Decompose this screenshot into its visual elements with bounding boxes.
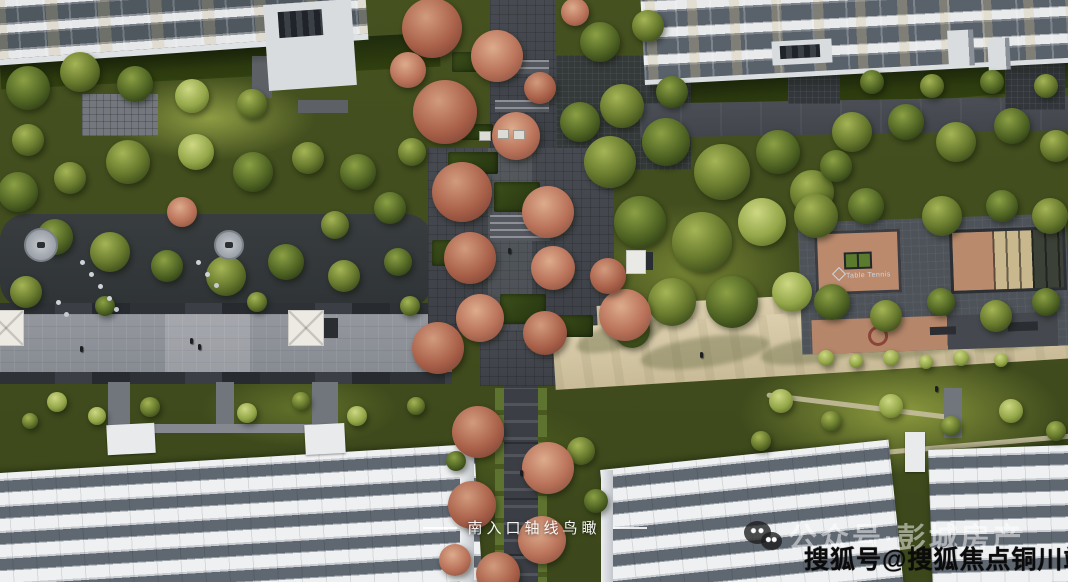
stepping-stones [80, 260, 85, 265]
tree-red [390, 52, 426, 88]
tree-green [832, 112, 872, 152]
tree-green [328, 260, 360, 292]
vegetation-layer [0, 0, 1068, 582]
tree-green [10, 276, 42, 308]
tree-green [90, 232, 130, 272]
garden-platform [214, 230, 244, 260]
tree-green [1034, 74, 1058, 98]
tree-red [522, 186, 574, 238]
tree-green [656, 76, 688, 108]
tree-green [614, 196, 666, 248]
tree-red [531, 246, 575, 290]
pedestrian [935, 386, 938, 392]
tree-red [522, 442, 574, 494]
tree-red [439, 544, 471, 576]
pedestrian [520, 470, 523, 476]
tree-green [247, 292, 267, 312]
pedestrian [80, 346, 83, 352]
tree-green [920, 74, 944, 98]
tree-green [237, 89, 267, 119]
tree-green [1032, 288, 1060, 316]
tree-green [883, 350, 899, 366]
tree-red [523, 311, 567, 355]
tree-green [849, 354, 863, 368]
tree-green [292, 142, 324, 174]
tree-green [446, 451, 466, 471]
tree-green [927, 288, 955, 316]
tree-red [476, 552, 520, 582]
canopy-umbrella [288, 310, 324, 346]
tree-green [178, 134, 214, 170]
tree-red [413, 80, 477, 144]
tree-green [584, 136, 636, 188]
pedestrian [198, 344, 201, 350]
tree-green [642, 118, 690, 166]
tree-green [407, 397, 425, 415]
tree-green [672, 212, 732, 272]
tree-green [206, 256, 246, 296]
tree-green [600, 84, 644, 128]
tree-green [820, 150, 852, 182]
tree-green [994, 353, 1008, 367]
tree-green [821, 411, 841, 431]
tree-green [941, 416, 961, 436]
wechat-icon [744, 521, 786, 555]
tree-green [374, 192, 406, 224]
tree-green [54, 162, 86, 194]
tree-green [794, 194, 838, 238]
tree-green [888, 104, 924, 140]
tree-red [599, 289, 651, 341]
tree-green [738, 198, 786, 246]
tree-red [524, 72, 556, 104]
tree-green [922, 196, 962, 236]
tree-green [879, 394, 903, 418]
tree-red [444, 232, 496, 284]
tree-red [167, 197, 197, 227]
tree-green [1046, 421, 1066, 441]
tree-green [0, 172, 38, 212]
kiosk-table [513, 130, 525, 140]
tree-green [772, 272, 812, 312]
tree-green [88, 407, 106, 425]
tree-green [980, 300, 1012, 332]
tree-green [818, 350, 834, 366]
tree-green [175, 79, 209, 113]
tree-green [584, 489, 608, 513]
tree-red [471, 30, 523, 82]
tree-green [321, 211, 349, 239]
canopy-table [626, 250, 646, 274]
tree-green [1040, 130, 1068, 162]
tree-green [12, 124, 44, 156]
tree-green [47, 392, 67, 412]
pedestrian [508, 248, 511, 254]
outdoor-seating [646, 252, 653, 270]
tree-green [60, 52, 100, 92]
tree-green [151, 250, 183, 282]
outdoor-seating [324, 318, 338, 338]
tree-green [106, 140, 150, 184]
tree-green [936, 122, 976, 162]
kiosk-table [479, 131, 491, 141]
sohu-watermark: 搜狐号@搜狐焦点铜川站 [804, 540, 1068, 576]
tree-green [384, 248, 412, 276]
tree-red [561, 0, 589, 26]
tree-green [560, 102, 600, 142]
tree-red [432, 162, 492, 222]
tree-red [412, 322, 464, 374]
tree-green [756, 130, 800, 174]
tree-green [400, 296, 420, 316]
tree-red [456, 294, 504, 342]
tree-green [292, 392, 310, 410]
pedestrian [190, 338, 193, 344]
tree-green [814, 284, 850, 320]
wechat-bubble-small [761, 532, 782, 550]
tree-green [999, 399, 1023, 423]
tree-green [268, 244, 304, 280]
tree-green [233, 152, 273, 192]
tree-red [590, 258, 626, 294]
tree-green [769, 389, 793, 413]
pedestrian [700, 352, 703, 358]
tree-green [347, 406, 367, 426]
tree-green [95, 296, 115, 316]
tree-green [751, 431, 771, 451]
tree-green [994, 108, 1030, 144]
tree-green [919, 355, 933, 369]
tree-green [648, 278, 696, 326]
tree-green [986, 190, 1018, 222]
tree-green [953, 350, 969, 366]
tree-green [398, 138, 426, 166]
tree-green [1032, 198, 1068, 234]
aerial-rendering: Table Tennis 南入口轴线鸟瞰 公众号·彭城房 [0, 0, 1068, 582]
garden-platform [24, 228, 58, 262]
tree-green [848, 188, 884, 224]
canopy-umbrella [0, 310, 24, 346]
tree-green [340, 154, 376, 190]
tree-green [632, 10, 664, 42]
kiosk-table [497, 129, 509, 139]
tree-red [452, 406, 504, 458]
tree-green [22, 413, 38, 429]
tree-green [140, 397, 160, 417]
tree-green [870, 300, 902, 332]
tree-green [860, 70, 884, 94]
tree-green [980, 70, 1004, 94]
tree-green [6, 66, 50, 110]
tree-green [694, 144, 750, 200]
tree-green [580, 22, 620, 62]
tree-green [117, 66, 153, 102]
tree-green [237, 403, 257, 423]
tree-green [706, 276, 758, 328]
tree-red [402, 0, 462, 58]
